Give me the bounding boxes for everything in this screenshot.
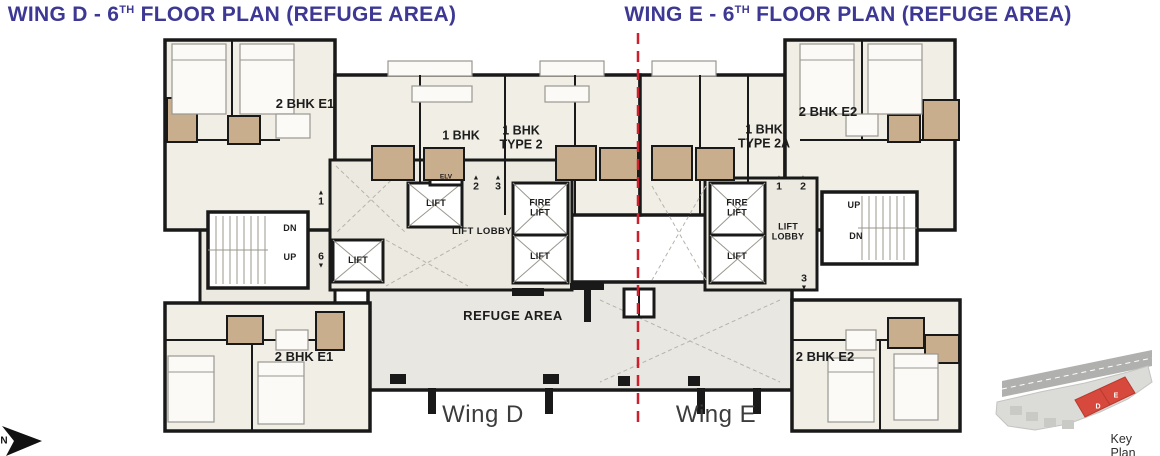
key-plan-label: Key Plan: [1111, 432, 1144, 456]
key-plan-building-d-label: D: [1095, 404, 1100, 411]
unit-label-2bhk-e1-bottom: 2 BHK E1: [275, 350, 334, 364]
lift-label-d2: LIFT: [530, 252, 550, 262]
stair-marker-d1: ▲ 1: [318, 189, 325, 207]
up-label-d: UP: [284, 253, 297, 263]
stair-marker-d3: ▲ 3: [495, 174, 502, 192]
key-plan-building-e-label: E: [1114, 393, 1119, 400]
unit-label-2bhk-e2-bottom: 2 BHK E2: [796, 350, 855, 364]
key-plan-map: [996, 350, 1152, 430]
unit-label-2bhk-e1-top: 2 BHK E1: [276, 97, 335, 111]
refuge-area-zone: [368, 282, 792, 390]
wing-e-title: WING E - 6TH FLOOR PLAN (REFUGE AREA): [624, 3, 1071, 27]
up-label-e: UP: [848, 201, 861, 211]
unit-label-2bhk-e2-top: 2 BHK E2: [799, 105, 858, 119]
stair-marker-e3: 3 ▼: [801, 273, 808, 291]
fire-lift-label-e: FIRE LIFT: [726, 198, 747, 217]
lift-label-d3: LIFT: [348, 256, 368, 266]
stair-marker-e2: ▲ 2: [800, 174, 807, 192]
floor-plan-page: WING D - 6TH FLOOR PLAN (REFUGE AREA) WI…: [0, 0, 1160, 456]
unit-label-1bhk: 1 BHK: [442, 129, 480, 143]
down-triangle-icon: ▼: [318, 262, 325, 269]
unit-label-1bhk-type2: 1 BHK TYPE 2: [499, 125, 542, 152]
lift-label-d1: LIFT: [426, 199, 446, 209]
fire-lift-label-d: FIRE LIFT: [529, 198, 550, 217]
refuge-area-label: REFUGE AREA: [463, 309, 563, 323]
down-triangle-icon: ▼: [801, 284, 808, 291]
stair-marker-d6: 6 ▼: [318, 251, 325, 269]
north-arrow-icon: [2, 426, 42, 456]
unit-label-1bhk-type2a: 1 BHK TYPE 2A: [738, 124, 790, 151]
wing-e-name: Wing E: [676, 402, 756, 428]
stair-marker-e1: ▲ 1: [776, 174, 783, 192]
dn-label-e: DN: [849, 232, 862, 242]
elv-label: ELV: [440, 173, 452, 180]
wing-d-title: WING D - 6TH FLOOR PLAN (REFUGE AREA): [8, 3, 456, 27]
stair-marker-d2: ▲ 2: [473, 174, 480, 192]
lift-lobby-label-d: LIFT LOBBY: [452, 227, 512, 237]
floor-plan-drawing: [0, 0, 1160, 456]
wing-d-name: Wing D: [442, 402, 524, 428]
north-label: N: [0, 436, 7, 447]
lift-label-e: LIFT: [727, 252, 747, 262]
lift-lobby-label-e: LIFT LOBBY: [772, 222, 805, 241]
dn-label-d: DN: [283, 224, 296, 234]
